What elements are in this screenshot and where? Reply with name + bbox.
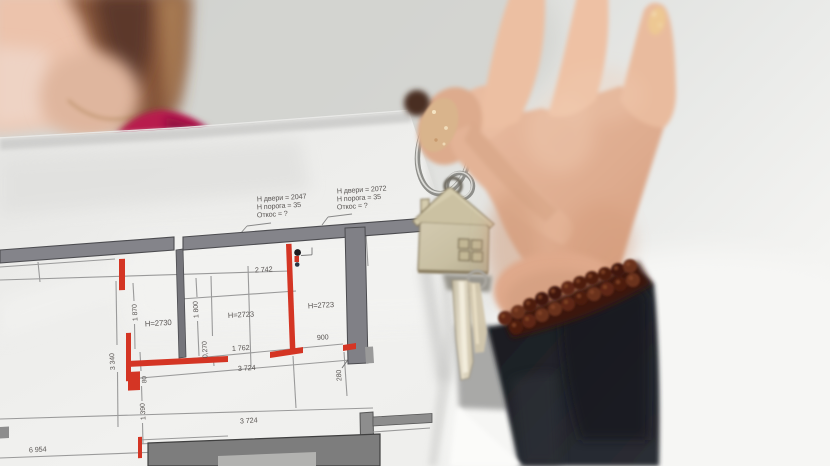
svg-text:1 762: 1 762 xyxy=(232,343,250,353)
svg-text:3 724: 3 724 xyxy=(238,363,256,373)
svg-text:Откос = ?: Откос = ? xyxy=(257,209,288,220)
svg-text:Н=2730: Н=2730 xyxy=(145,318,173,329)
svg-text:1 800: 1 800 xyxy=(193,301,201,318)
svg-text:3 724: 3 724 xyxy=(240,415,258,425)
svg-text:6 954: 6 954 xyxy=(29,444,47,454)
svg-text:Н=2723: Н=2723 xyxy=(308,300,335,311)
svg-text:900: 900 xyxy=(317,332,329,342)
svg-text:1 390: 1 390 xyxy=(140,403,148,420)
svg-text:Н=2723: Н=2723 xyxy=(228,309,255,320)
svg-text:1 870: 1 870 xyxy=(132,304,140,321)
svg-text:2 742: 2 742 xyxy=(255,264,273,274)
svg-text:80: 80 xyxy=(141,375,148,383)
svg-text:3 340: 3 340 xyxy=(109,353,117,370)
svg-text:Откос = ?: Откос = ? xyxy=(337,201,368,212)
svg-text:280: 280 xyxy=(336,369,344,381)
svg-text:0,270: 0,270 xyxy=(202,341,210,358)
